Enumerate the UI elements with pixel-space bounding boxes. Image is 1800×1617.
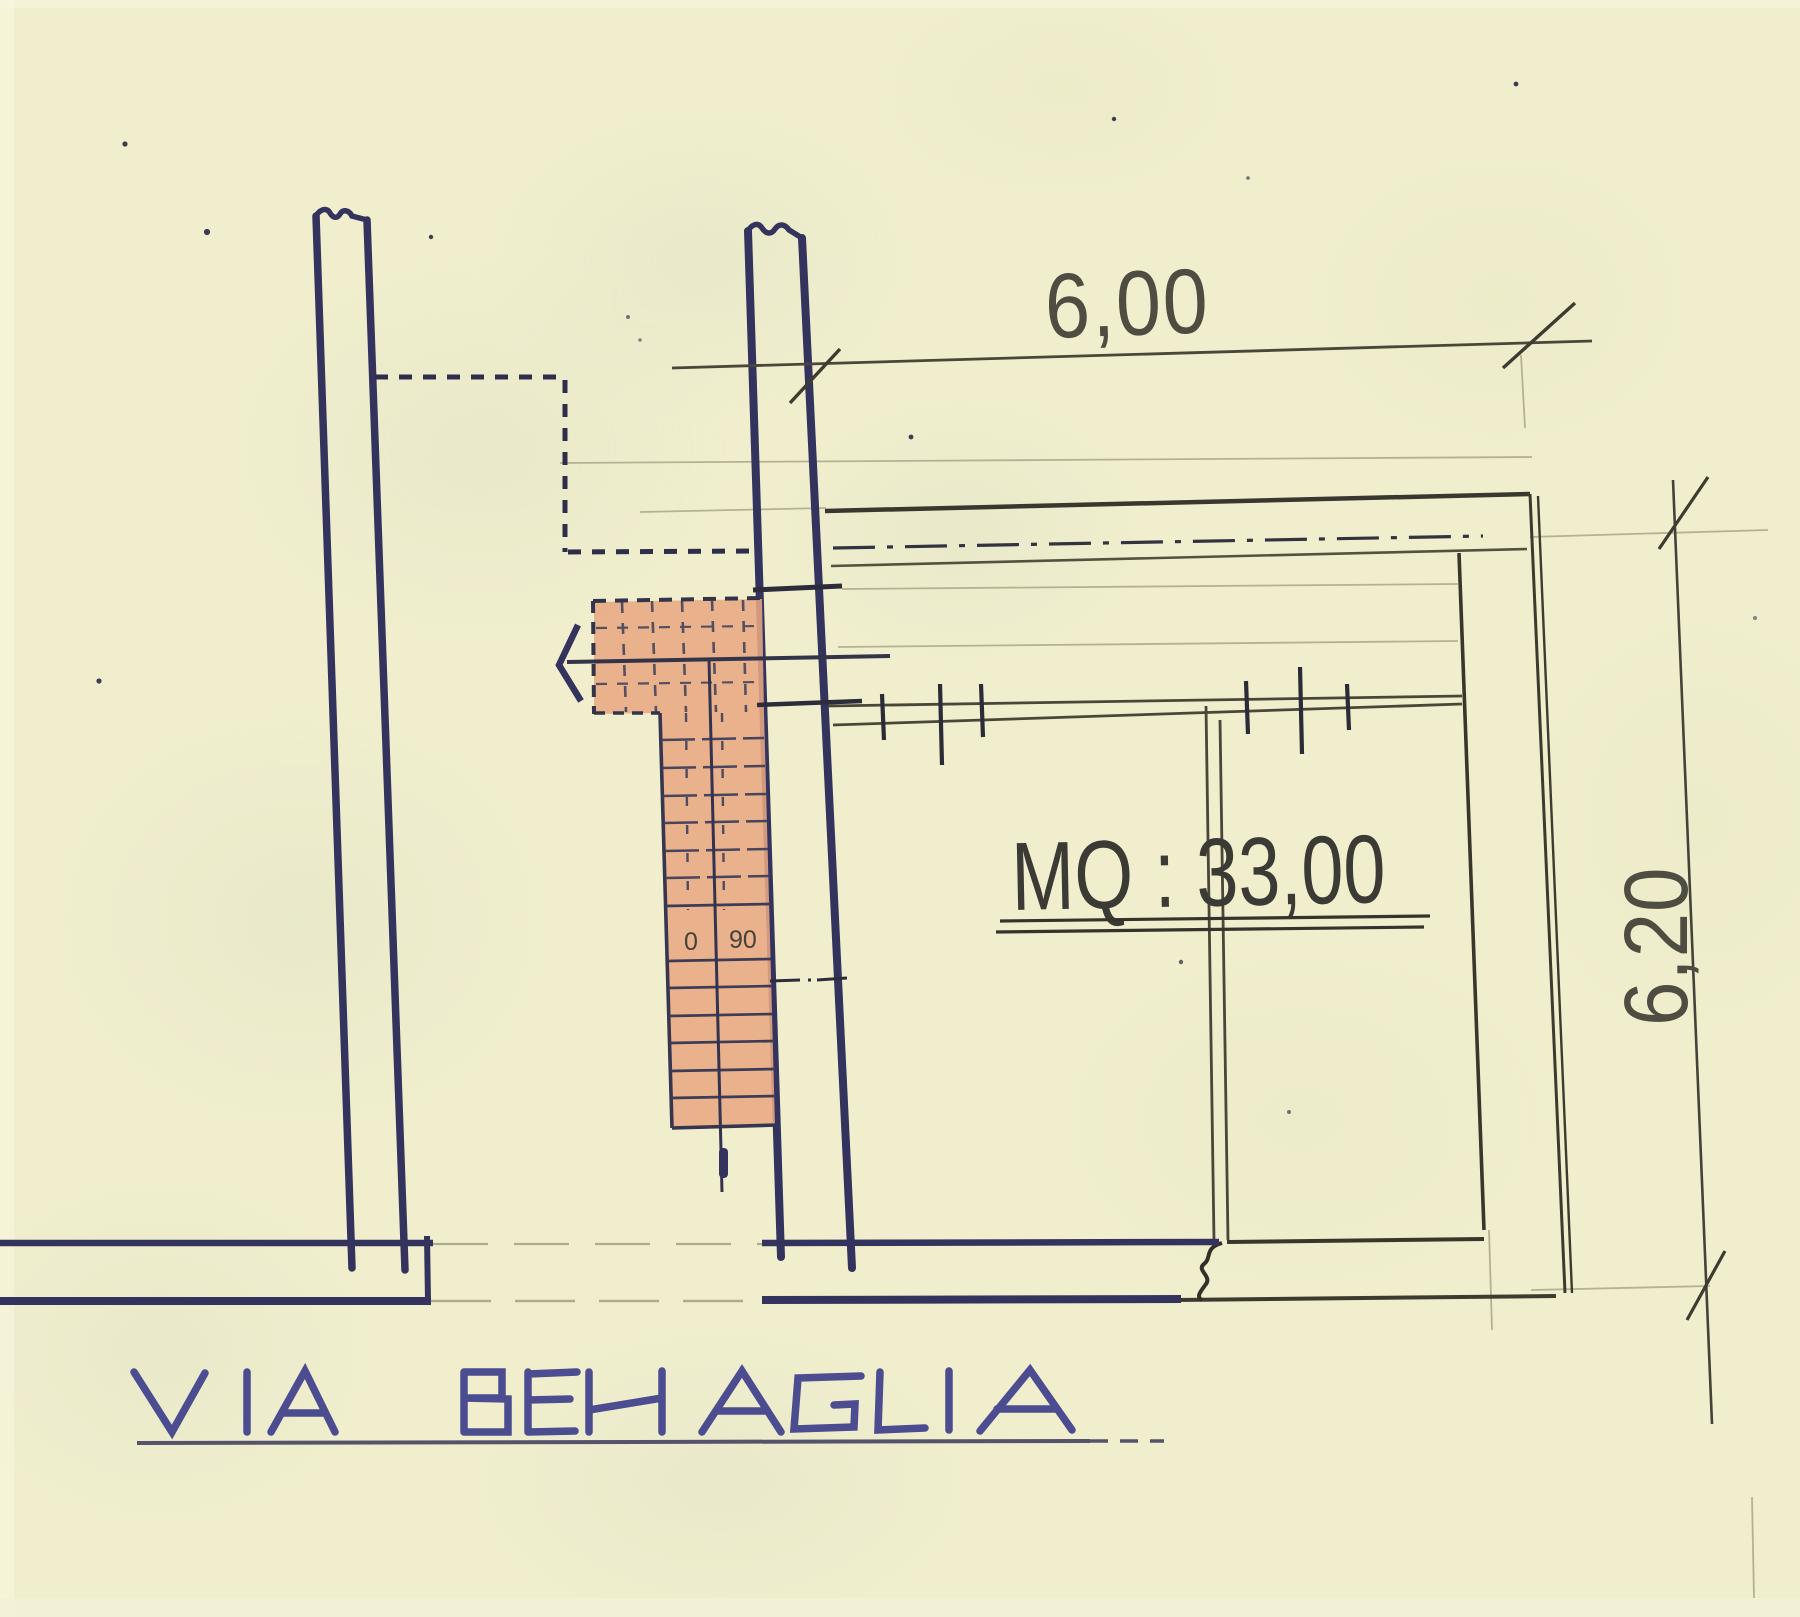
svg-text:0: 0 bbox=[684, 928, 698, 956]
svg-text:6,00: 6,00 bbox=[1043, 251, 1211, 359]
svg-text:6,20: 6,20 bbox=[1607, 867, 1707, 1026]
svg-text:90: 90 bbox=[729, 926, 757, 954]
svg-text:MQ : 33,00: MQ : 33,00 bbox=[1010, 815, 1386, 931]
